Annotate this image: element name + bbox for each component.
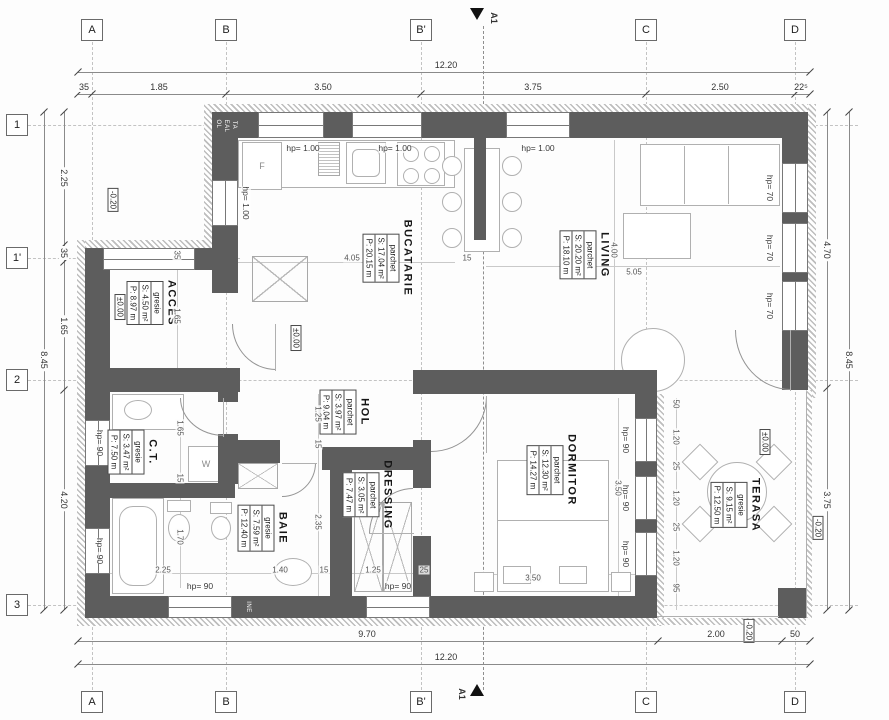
bidet-bowl xyxy=(211,516,231,540)
dim-text: 3.50 xyxy=(524,574,542,583)
insulation xyxy=(657,394,664,618)
room-info-box: parchet S: 17.04 m² P: 20.15 m xyxy=(363,233,400,282)
door-arc-dormitor xyxy=(431,396,487,452)
dim-text: 8.45 xyxy=(39,349,49,371)
window-label: hp= 70 xyxy=(765,175,775,201)
window-label: hp= 1.00 xyxy=(521,143,554,153)
window-label: hp= 1.00 xyxy=(241,186,251,219)
nightstand xyxy=(611,572,631,592)
room-label-bucatarie: BUCATARIE parchet S: 17.04 m² P: 20.15 m xyxy=(363,220,414,297)
dim-text: 35 xyxy=(173,250,182,261)
dim-text: 2.25 xyxy=(59,167,69,189)
dim-text: 4.70 xyxy=(822,239,832,261)
dim-line xyxy=(78,72,810,73)
dim-text: 1.85 xyxy=(148,82,170,92)
insulation xyxy=(85,240,212,248)
dining-chair xyxy=(502,192,522,212)
dim-text: 1.65 xyxy=(173,307,182,325)
level-tag: ±0.00 xyxy=(760,429,771,455)
dim-text: 8.45 xyxy=(844,349,854,371)
dim-text: 2.25 xyxy=(154,566,172,575)
wall-terrace-corner xyxy=(778,588,806,618)
dim-text: 4.20 xyxy=(59,489,69,511)
dining-chair xyxy=(442,156,462,176)
grid-bubble-left-2: 2 xyxy=(6,369,28,391)
dim-text: 2.00 xyxy=(705,629,727,639)
dim-line xyxy=(78,664,810,665)
grid-bubble-left-1p: 1' xyxy=(6,247,28,269)
grid-bubble-bottom-A: A xyxy=(81,691,103,713)
level-tag: -0.20 xyxy=(813,516,824,540)
dim-text: 1.20 xyxy=(672,489,681,507)
section-marker-icon xyxy=(470,684,484,696)
grid-bubble-top-C: C xyxy=(635,19,657,41)
dim-text: 12.20 xyxy=(433,652,460,662)
room-label-acces: ACCES gresie S: 4.50 m² P: 8.97 m xyxy=(127,280,178,326)
grid-bubble-top-D: D xyxy=(784,19,806,41)
insulation xyxy=(808,104,816,398)
window xyxy=(782,281,808,331)
dim-text: 25 xyxy=(419,566,430,575)
room-info-box: parchet S: 3.05 m² P: 7.47 m xyxy=(343,473,380,518)
pillow xyxy=(559,566,587,584)
dim-text: 3.50 xyxy=(312,82,334,92)
door-arc-ct xyxy=(180,398,224,436)
kitchen-sink-bowl xyxy=(352,149,380,177)
dining-chair xyxy=(502,156,522,176)
washing-machine-label: W xyxy=(202,459,211,469)
room-name: DRESSING xyxy=(382,460,394,529)
room-label-living: LIVING parchet S: 20.20 m² P: 18.10 m xyxy=(560,230,611,279)
insulation xyxy=(657,618,806,625)
dim-text: 1.20 xyxy=(672,549,681,567)
dim-text: 1.65 xyxy=(59,315,69,337)
kitchen-cabinet xyxy=(252,256,308,302)
wall-mid-left xyxy=(108,368,240,392)
window xyxy=(635,476,657,520)
dim-text: 2.35 xyxy=(314,513,323,531)
dim-text: 1.65 xyxy=(176,419,185,437)
level-tag: -0.20 xyxy=(744,619,755,643)
dim-text: 4.05 xyxy=(343,254,361,263)
nightstand xyxy=(474,572,494,592)
dim-text: 35 xyxy=(77,82,91,92)
dim-line xyxy=(78,641,810,642)
door-leaf xyxy=(369,533,414,534)
insulation xyxy=(204,112,212,248)
room-info-box: gresie S: 9.15 m² P: 12.50 m xyxy=(711,482,748,529)
room-label-hol: HOL parchet S: 3.97 m² P: 9.04 m xyxy=(320,390,371,435)
level-tag: ±0.00 xyxy=(115,294,126,320)
dim-text: 5.05 xyxy=(625,268,643,277)
dim-text: 3.75 xyxy=(522,82,544,92)
grid-bubble-bottom-B: B xyxy=(215,691,237,713)
dining-chair xyxy=(442,192,462,212)
floor-plan: F W xyxy=(0,0,889,720)
dim-text: 25 xyxy=(672,522,681,533)
wall-dressing-east-a xyxy=(413,440,431,488)
grid-bubble-left-1: 1 xyxy=(6,114,28,136)
section-marker-label: A1 xyxy=(457,686,467,702)
dim-text: 50 xyxy=(788,629,802,639)
door-leaf xyxy=(275,324,276,371)
bidet-tank xyxy=(210,502,232,514)
room-label-terasa: TERASA gresie S: 9.15 m² P: 12.50 m xyxy=(711,478,762,532)
dim-text: 95 xyxy=(672,583,681,594)
dim-text: 15 xyxy=(314,439,323,450)
insulation xyxy=(204,104,808,112)
room-name: DORMITOR xyxy=(566,434,578,506)
dim-text: 15 xyxy=(319,566,330,575)
dim-text: 1.25 xyxy=(314,405,323,423)
sofa xyxy=(640,144,780,206)
room-info-box: gresie S: 7.59 m² P: 12.40 m xyxy=(238,505,275,552)
dim-text: 1.70 xyxy=(176,528,185,546)
dim-text: 1.20 xyxy=(672,428,681,446)
room-name: BAIE xyxy=(277,512,289,544)
window-label: hp= 90 xyxy=(621,485,631,511)
dim-text: 3.50 xyxy=(614,479,623,497)
stove-burner xyxy=(424,146,440,162)
coffee-table xyxy=(623,213,691,259)
dim-line xyxy=(827,112,828,610)
stove-burner xyxy=(424,168,440,184)
dim-text: 15 xyxy=(176,473,185,484)
section-marker-label: A1 xyxy=(489,10,499,26)
wall-fin xyxy=(474,138,486,240)
wall-note: TA xyxy=(231,121,237,129)
dim-text: 2.50 xyxy=(709,82,731,92)
bathroom-cabinet xyxy=(238,463,278,489)
room-name: BUCATARIE xyxy=(402,220,414,297)
terrace-edge xyxy=(806,392,807,618)
room-name: HOL xyxy=(359,398,371,426)
dim-text: 9.70 xyxy=(356,629,378,639)
window-label: hp= 70 xyxy=(765,235,775,261)
window xyxy=(782,163,808,213)
window xyxy=(212,180,238,226)
wall-note: EAL xyxy=(223,120,229,133)
window-label: hp= 90 xyxy=(95,430,105,456)
window xyxy=(258,112,324,138)
wall-hol-south xyxy=(218,440,280,463)
dim-text: 1.40 xyxy=(271,566,289,575)
window xyxy=(506,112,570,138)
door-leaf xyxy=(790,330,791,391)
grid-bubble-top-B: B xyxy=(215,19,237,41)
window-label: hp= 90 xyxy=(187,581,213,591)
window-label: hp= 90 xyxy=(621,427,631,453)
window-label: hp= 70 xyxy=(765,293,775,319)
room-name: TERASA xyxy=(750,478,762,532)
door-leaf xyxy=(486,396,487,453)
stove-burner xyxy=(403,168,419,184)
window-label: hp= 1.00 xyxy=(378,143,411,153)
insulation xyxy=(77,240,85,626)
dim-helper xyxy=(618,398,619,596)
sofa-cushion-line xyxy=(684,146,685,204)
wall-mid-right xyxy=(413,370,657,394)
door-arc-baie xyxy=(282,463,316,497)
dish-drainer xyxy=(318,142,340,176)
door-leaf xyxy=(223,398,224,437)
room-info-box: gresie S: 4.50 m² P: 8.97 m xyxy=(127,281,164,326)
window xyxy=(635,532,657,576)
room-label-dressing: DRESSING parchet S: 3.05 m² P: 7.47 m xyxy=(343,460,394,529)
room-info-box: parchet S: 12.30 m² P: 14.27 m xyxy=(527,445,564,494)
grid-bubble-top-A: A xyxy=(81,19,103,41)
window-label: hp= 90 xyxy=(385,581,411,591)
dim-text: 50 xyxy=(672,399,681,410)
dim-text: 12.20 xyxy=(433,60,460,70)
wall-ct-baie xyxy=(110,483,235,498)
dim-text: 22⁵ xyxy=(792,82,810,92)
dining-chair xyxy=(442,228,462,248)
section-marker-icon xyxy=(470,8,484,20)
grid-bubble-bottom-D: D xyxy=(784,691,806,713)
dim-text: 15 xyxy=(462,254,473,263)
sofa-cushion-line xyxy=(728,146,729,204)
door-arc-acces xyxy=(232,324,276,370)
room-label-ct: C.T. gresie S: 3.47 m² P: 7.50 m xyxy=(108,430,159,475)
fridge-label: F xyxy=(259,161,265,171)
dim-line xyxy=(78,94,810,95)
room-info-box: parchet S: 3.97 m² P: 9.04 m xyxy=(320,390,357,435)
room-label-baie: BAIE gresie S: 7.59 m² P: 12.40 m xyxy=(238,505,289,552)
window xyxy=(352,112,422,138)
grid-bubble-bottom-C: C xyxy=(635,691,657,713)
dim-text: 1.25 xyxy=(364,566,382,575)
grid-bubble-left-3: 3 xyxy=(6,594,28,616)
wall-note: OL xyxy=(215,119,221,128)
window-label: hp= 1.00 xyxy=(286,143,319,153)
door-leaf xyxy=(282,463,317,464)
dim-text: 3.75 xyxy=(822,489,832,511)
room-info-box: gresie S: 3.47 m² P: 7.50 m xyxy=(108,430,145,475)
level-tag: ±0.00 xyxy=(291,325,302,351)
level-tag: -0.20 xyxy=(108,188,119,212)
window xyxy=(782,223,808,273)
window xyxy=(366,596,430,618)
room-label-dormitor: DORMITOR parchet S: 12.30 m² P: 14.27 m xyxy=(527,434,578,506)
bathtub-inner xyxy=(119,506,157,586)
bed-blanket-line xyxy=(497,520,609,521)
dining-chair xyxy=(502,228,522,248)
dim-text: 25 xyxy=(672,461,681,472)
window xyxy=(635,418,657,462)
terrace-edge xyxy=(657,616,779,617)
window-label: hp= 90 xyxy=(621,541,631,567)
ct-basin xyxy=(124,400,152,420)
grid-bubble-top-B2: B' xyxy=(410,19,432,41)
room-info-box: parchet S: 20.20 m² P: 18.10 m xyxy=(560,230,597,279)
dim-text: 35 xyxy=(59,246,69,260)
door-arc-terasa xyxy=(735,330,791,390)
window-label: hp= 90 xyxy=(95,538,105,564)
toilet-tank xyxy=(167,500,191,512)
insulation xyxy=(77,618,665,626)
dim-text: 4.00 xyxy=(610,241,619,259)
wall-note: INE xyxy=(245,601,251,613)
grid-bubble-bottom-B2: B' xyxy=(410,691,432,713)
room-name: C.T. xyxy=(147,439,159,465)
window xyxy=(168,596,232,618)
